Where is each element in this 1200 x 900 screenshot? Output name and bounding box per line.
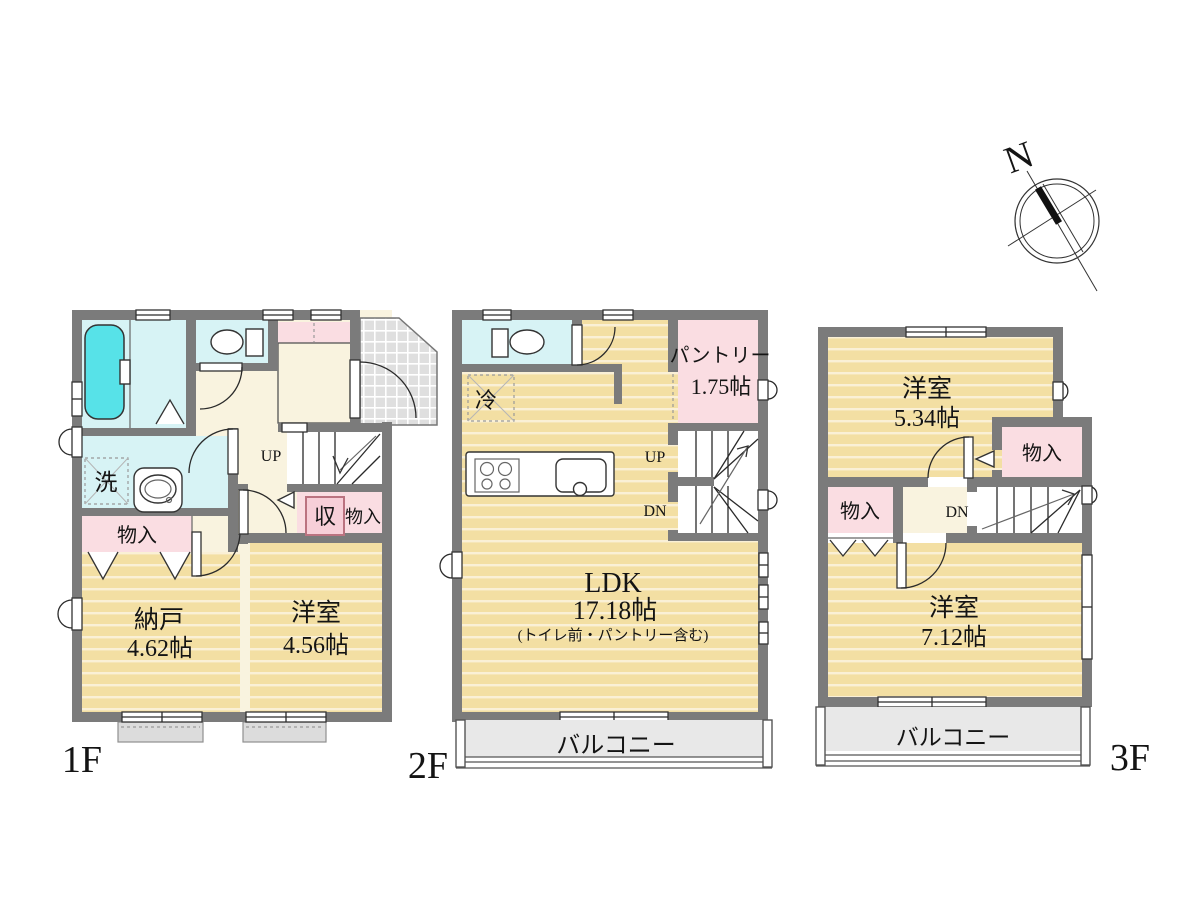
bedroom-1f-size: 4.56帖 [283, 632, 349, 659]
kitchen-sink-icon [556, 459, 606, 496]
floor-plan-2f: パントリー 1.75帖 冷 UP DN LDK 17.18帖 (トイレ前・パント… [408, 310, 777, 787]
floor-plan-drawing: UP 洗 物入 収 物入 納戸 4.62帖 洋室 4.56帖 1F [0, 0, 1200, 900]
pantry-size: 1.75帖 [691, 374, 752, 399]
nando-name: 納戸 [134, 606, 184, 634]
storage-left-label-3f: 物入 [840, 500, 880, 523]
floor-label-2f: 2F [408, 745, 448, 787]
compass-icon: N [999, 133, 1099, 291]
floor-label-1f: 1F [62, 739, 102, 781]
up-label-2f: UP [645, 449, 666, 466]
storage-left-label: 物入 [117, 524, 157, 547]
toilet-icon-1f [211, 329, 263, 356]
nando-size: 4.62帖 [127, 635, 193, 662]
entrance-porch [360, 318, 437, 425]
floor-label-3f: 3F [1110, 737, 1150, 779]
pantry-floor [678, 320, 758, 423]
storage-mid-label: 物入 [345, 507, 381, 527]
balcony-label-2f: バルコニー [556, 733, 676, 759]
dn-label-2f: DN [643, 503, 667, 520]
floor-plan-1f: UP 洗 物入 収 物入 納戸 4.62帖 洋室 4.56帖 1F [58, 310, 437, 781]
toilet-icon-2f [492, 329, 544, 357]
kitchen-counter [466, 452, 614, 496]
ldk-size: 17.18帖 [573, 596, 658, 625]
bedroom-upper-name: 洋室 [902, 375, 952, 403]
balcony-label-3f: バルコニー [896, 725, 1011, 750]
bathtub-handle [120, 360, 130, 384]
bedroom-lower-name: 洋室 [929, 594, 979, 622]
bedroom-upper-size: 5.34帖 [894, 405, 960, 432]
bathtub-icon [85, 325, 124, 419]
bedroom-lower-size: 7.12帖 [921, 624, 987, 651]
window-shutter-boxes [118, 722, 326, 742]
laundry-label: 洗 [95, 470, 118, 495]
ldk-note: (トイレ前・パントリー含む) [518, 627, 709, 644]
sink-icon [134, 468, 182, 512]
staircase-3f-area [977, 487, 1082, 533]
storage-right-label: 物入 [1022, 442, 1062, 465]
fridge-label: 冷 [475, 388, 497, 413]
pantry-name: パントリー [670, 345, 771, 367]
up-label-1f: UP [261, 448, 282, 465]
storage-symbol-label: 収 [314, 504, 336, 529]
floor-plan-3f: 洋室 5.34帖 物入 物入 DN 洋室 7.12帖 バルコニー 3F [816, 327, 1150, 779]
dn-label-3f: DN [945, 504, 969, 521]
floor-plan-page: UP 洗 物入 収 物入 納戸 4.62帖 洋室 4.56帖 1F [0, 0, 1200, 900]
bedroom-floor [250, 543, 382, 712]
north-label: N [999, 133, 1039, 182]
shoe-cabinet [278, 322, 352, 343]
ldk-name: LDK [584, 568, 642, 599]
bedroom-1f-name: 洋室 [291, 599, 341, 627]
